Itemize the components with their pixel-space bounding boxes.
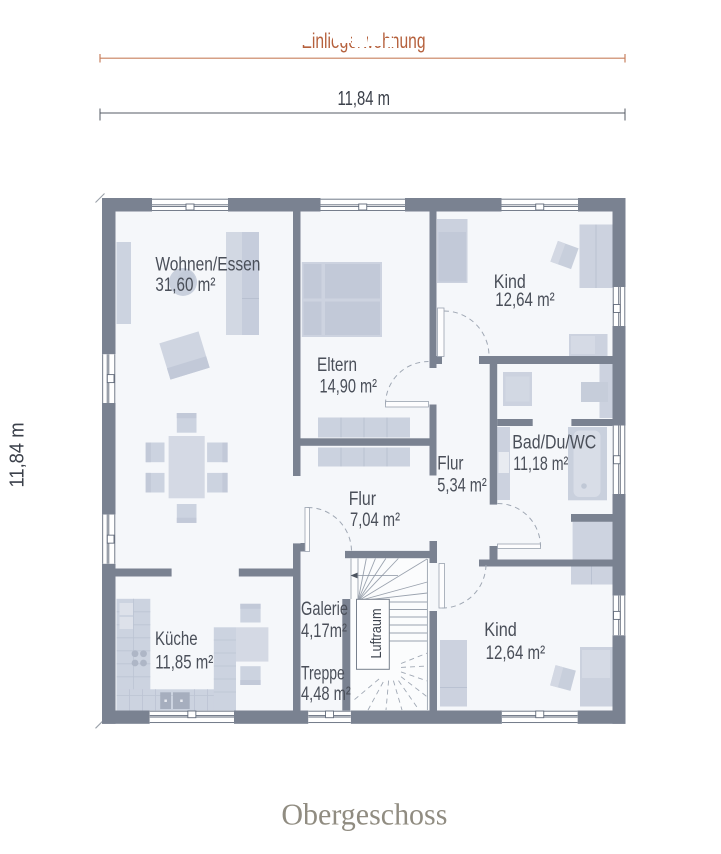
svg-text:Kind: Kind (484, 620, 517, 641)
svg-text:Eltern: Eltern (317, 355, 357, 376)
svg-text:11,84 m: 11,84 m (338, 87, 391, 110)
svg-text:Flur: Flur (437, 454, 464, 475)
svg-text:11,84 m: 11,84 m (7, 423, 29, 488)
svg-text:11,85 m²: 11,85 m² (155, 653, 213, 674)
svg-text:Galerie: Galerie (301, 599, 348, 620)
svg-text:Obergeschoss: Obergeschoss (281, 797, 447, 832)
svg-text:Luftraum: Luftraum (368, 609, 385, 659)
svg-text:Flur: Flur (349, 489, 377, 510)
svg-text:Treppe: Treppe (301, 664, 345, 685)
svg-text:31,60 m²: 31,60 m² (155, 275, 215, 296)
svg-text:4,48 m²: 4,48 m² (301, 684, 351, 705)
svg-text:12,64 m²: 12,64 m² (495, 290, 555, 311)
svg-text:Bad/Du/WC: Bad/Du/WC (512, 433, 596, 454)
svg-text:4,17m²: 4,17m² (301, 621, 347, 642)
svg-text:Küche: Küche (155, 629, 198, 650)
svg-text:12,64 m²: 12,64 m² (486, 643, 546, 664)
svg-text:11,18 m²: 11,18 m² (513, 454, 568, 475)
svg-text:5,34 m²: 5,34 m² (437, 476, 487, 497)
svg-text:7,04 m²: 7,04 m² (350, 510, 400, 531)
svg-text:14,90 m²: 14,90 m² (320, 376, 378, 397)
svg-text:Wohnen/Essen: Wohnen/Essen (155, 255, 260, 276)
